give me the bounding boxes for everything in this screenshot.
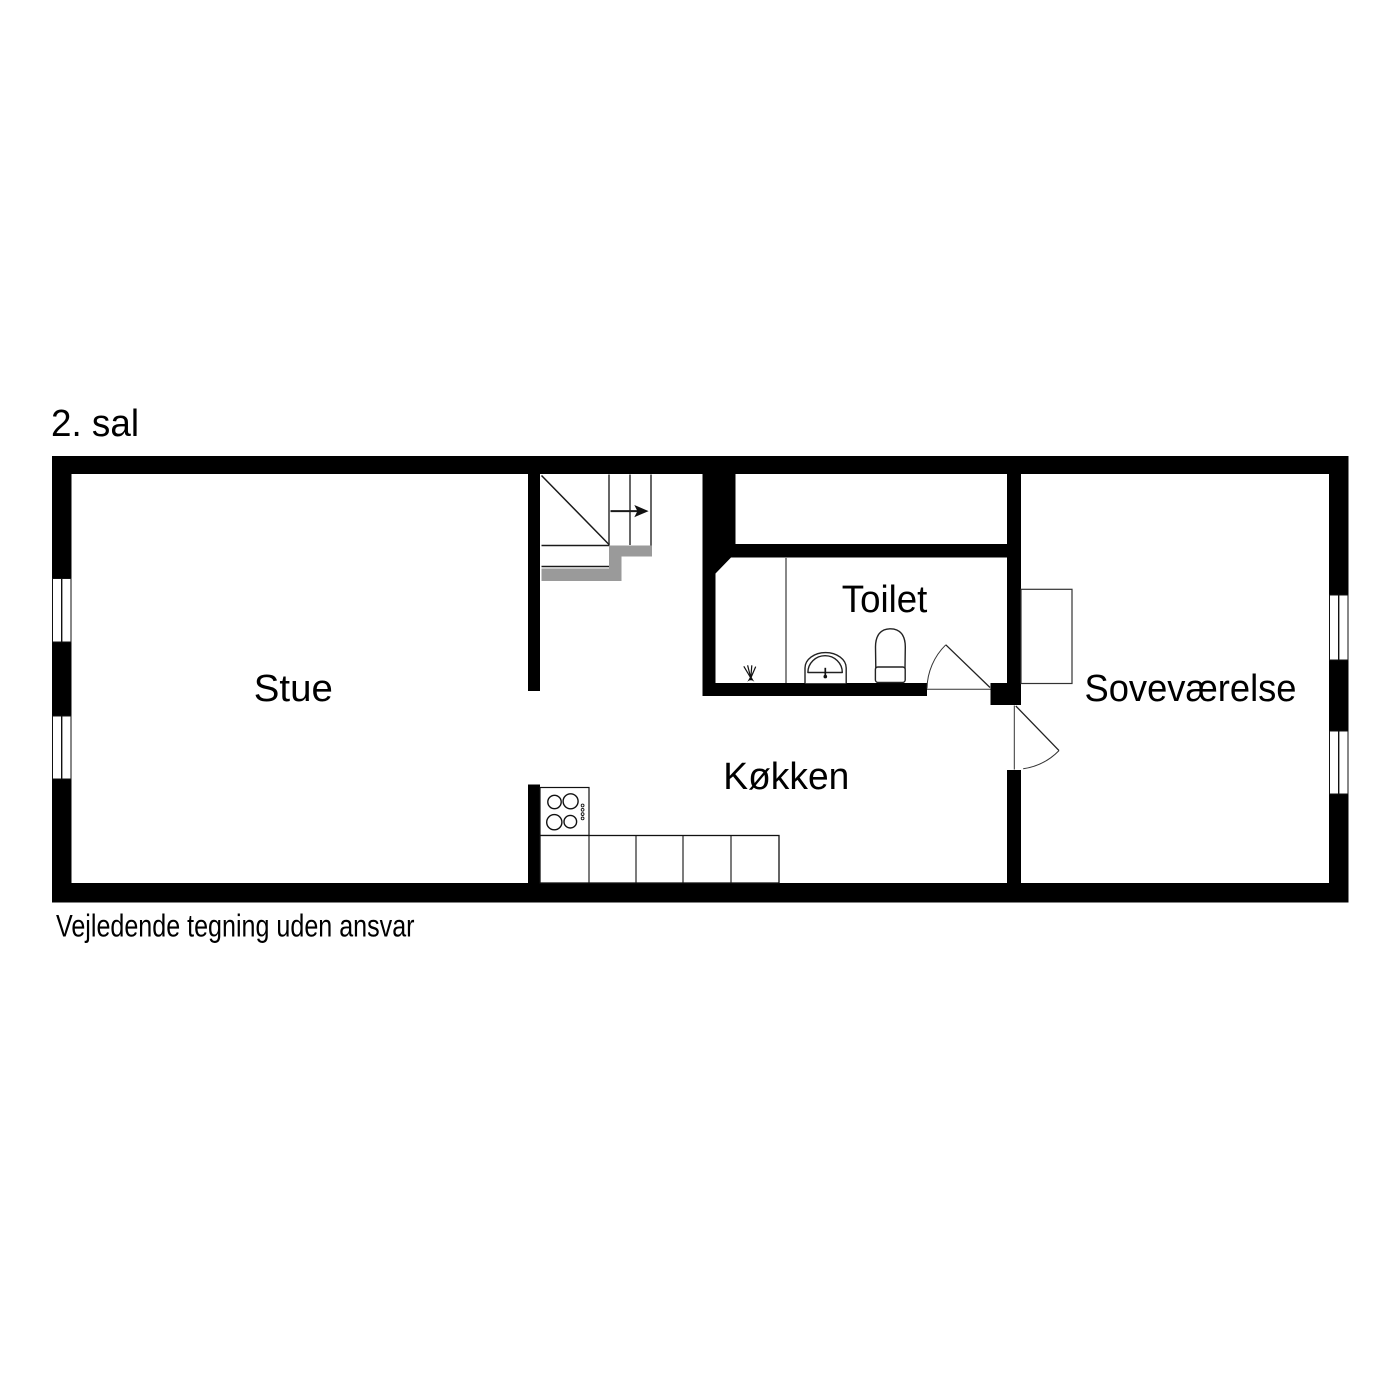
svg-text:2. sal: 2. sal (51, 403, 139, 445)
svg-text:Soveværelse: Soveværelse (1085, 668, 1297, 710)
svg-text:Køkken: Køkken (723, 756, 849, 798)
svg-text:Vejledende tegning uden ansvar: Vejledende tegning uden ansvar (56, 908, 415, 944)
svg-text:Stue: Stue (254, 668, 333, 710)
svg-text:Toilet: Toilet (842, 579, 928, 621)
